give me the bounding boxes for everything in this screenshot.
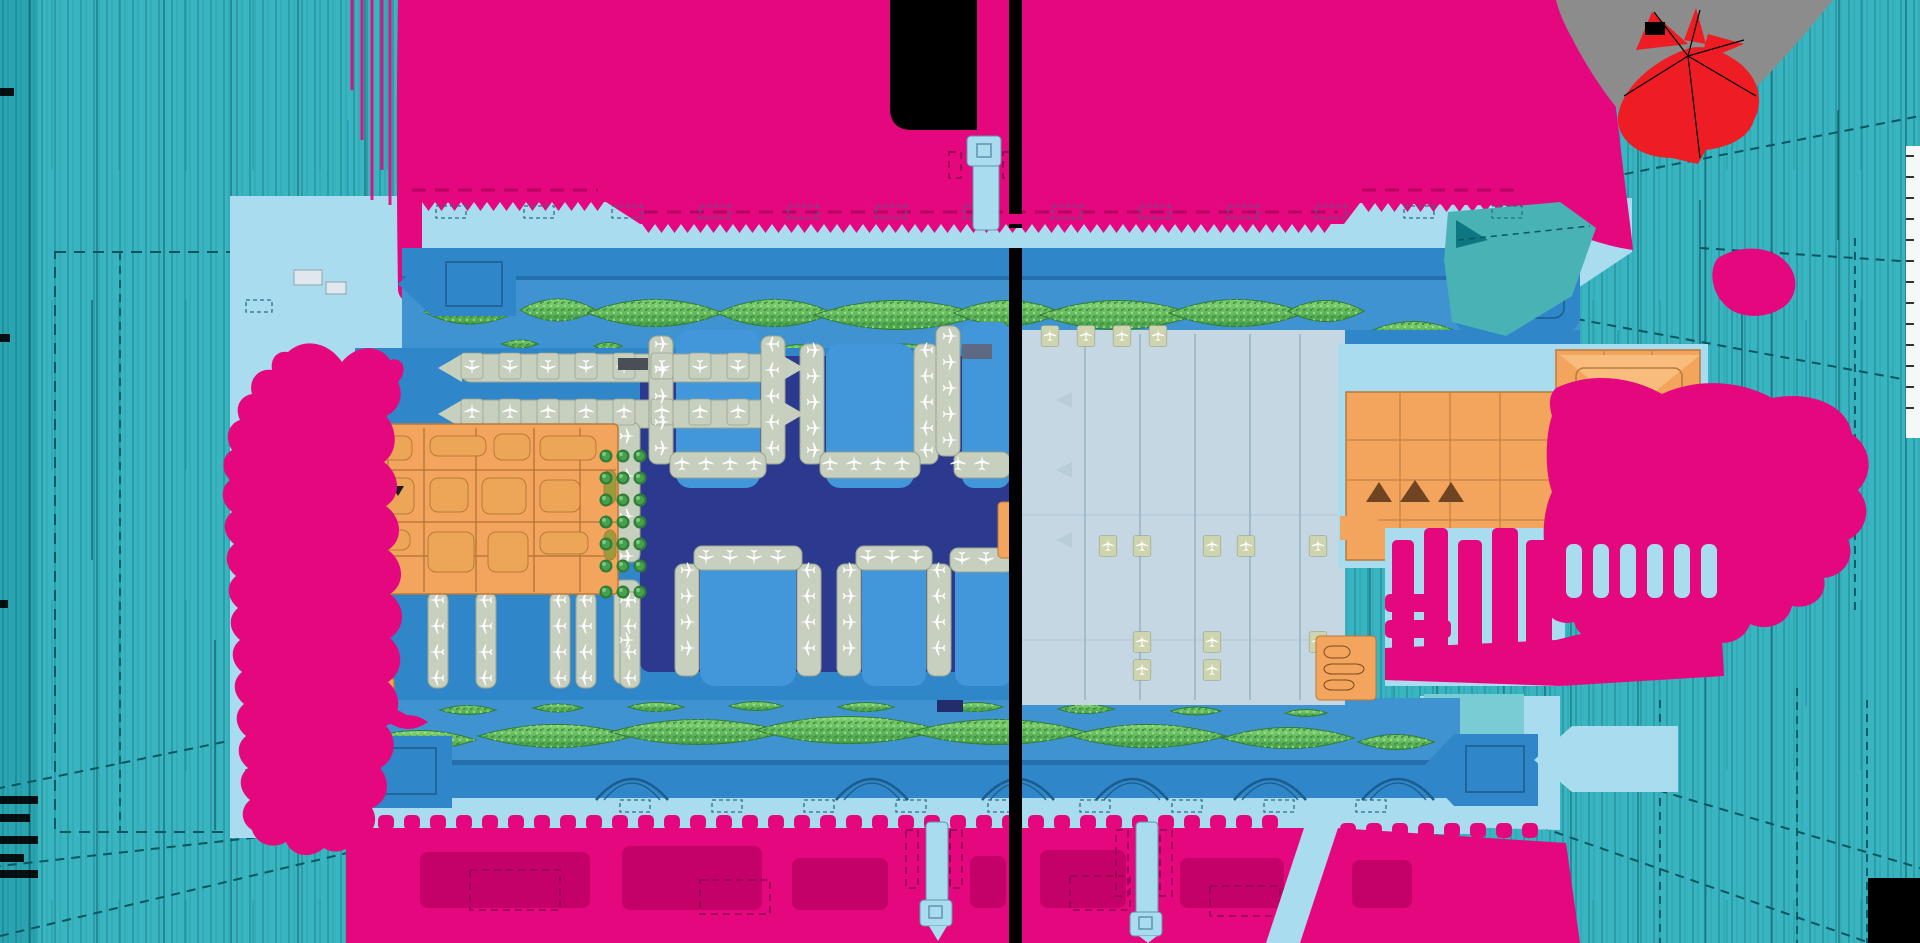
pink-battlement-east-tooth xyxy=(1470,823,1486,838)
road-stem-south-b-band xyxy=(1136,822,1158,920)
section-cut-line-upper xyxy=(1009,0,1022,228)
pink-emboss-blocks-band xyxy=(792,858,888,910)
pink-battlement-west-tooth xyxy=(482,815,498,830)
road-stem-south-a-band xyxy=(926,822,948,908)
aircraft-stand xyxy=(1149,326,1167,347)
tree-icon xyxy=(600,560,613,573)
orange-wedge-east xyxy=(1340,516,1378,540)
pink-battlement-west-tooth xyxy=(1262,815,1278,830)
pale-teeth-over-pink-tooth xyxy=(1566,544,1582,598)
aircraft-stand xyxy=(1237,536,1255,557)
map-layers xyxy=(0,0,1920,943)
support-campus-rooms-band xyxy=(540,480,580,512)
pink-comb-teeth-band xyxy=(1385,620,1451,638)
pink-battlement-west-tooth xyxy=(976,815,992,830)
aircraft-stand xyxy=(689,353,711,379)
tree-icon xyxy=(617,472,630,485)
pink-battlement-west-tooth xyxy=(1106,815,1122,830)
tree-icon xyxy=(600,472,613,485)
section-cut-pink-tick xyxy=(1004,214,1028,224)
tree-icon xyxy=(634,560,647,573)
pink-emboss-blocks-band xyxy=(1180,858,1284,908)
road-stem-north-band xyxy=(967,136,1001,166)
support-campus-rooms-band xyxy=(430,478,468,512)
aircraft-stand xyxy=(1113,326,1131,347)
aircraft-stand xyxy=(537,399,559,425)
terminal-pocket-s2 xyxy=(862,556,926,686)
aircraft-stand xyxy=(727,353,749,379)
aircraft-stand xyxy=(499,399,521,425)
gate-bands-band xyxy=(820,452,920,478)
pink-emboss-blocks-band xyxy=(1040,850,1126,908)
pink-emboss-blocks-band xyxy=(420,852,590,908)
pink-battlement-east-tooth xyxy=(1522,823,1538,838)
terminal-pocket-s1 xyxy=(700,556,796,686)
section-cut-line-lower xyxy=(1009,248,1022,943)
tree-icon xyxy=(600,538,613,551)
pale-teeth-over-pink-tooth xyxy=(1647,544,1663,598)
road-stem-south-b-band xyxy=(1130,912,1162,936)
pink-battlement-east-tooth xyxy=(1496,823,1512,838)
tree-icon xyxy=(617,494,630,507)
pale-teeth-over-pink-tooth xyxy=(1674,544,1690,598)
gate-bands-band xyxy=(936,326,960,456)
pink-battlement-west-tooth xyxy=(1236,815,1252,830)
pink-battlement-west-tooth xyxy=(534,815,550,830)
tree-icon xyxy=(617,450,630,463)
pink-wiggle-west xyxy=(223,343,404,855)
masterplan-canvas xyxy=(0,0,1920,943)
pink-battlement-west-tooth xyxy=(508,815,524,830)
tree-icon xyxy=(600,586,613,599)
support-campus-rooms-band xyxy=(430,436,486,456)
logo-black-rect xyxy=(1645,22,1665,35)
small-gray-block-a xyxy=(294,270,322,285)
pink-comb-teeth-band xyxy=(1385,594,1433,612)
pink-battlement-west-tooth xyxy=(716,815,732,830)
pale-teeth-over-pink-tooth xyxy=(1620,544,1636,598)
gate-bands-band xyxy=(675,564,699,676)
section-mask-rect xyxy=(890,0,977,130)
small-gray-block-b xyxy=(326,282,346,294)
pink-battlement-west-tooth xyxy=(430,815,446,830)
pink-battlement-west-tooth xyxy=(612,815,628,830)
aircraft-stand xyxy=(461,399,483,425)
aircraft-stand xyxy=(1203,660,1221,681)
support-campus-rooms-band xyxy=(428,532,474,572)
pink-battlement-west-tooth xyxy=(846,815,862,830)
pink-battlement-east-tooth xyxy=(1444,823,1460,838)
support-campus-rooms-band xyxy=(488,532,528,572)
pink-battlement-west-tooth xyxy=(560,815,576,830)
support-campus-rooms-band xyxy=(540,436,596,460)
aircraft-stand xyxy=(1133,660,1151,681)
aircraft-stand xyxy=(1133,632,1151,653)
bus-block xyxy=(618,358,648,370)
terminal-south-stub xyxy=(937,700,963,712)
pink-battlement-west-tooth xyxy=(1184,815,1200,830)
tree-icon xyxy=(634,472,647,485)
road-stem-south-a-band xyxy=(920,900,952,926)
pink-battlement-west-tooth xyxy=(352,815,368,830)
pink-battlement-west-tooth xyxy=(1210,815,1226,830)
pink-battlement-west-tooth xyxy=(820,815,836,830)
pink-battlement-west-tooth xyxy=(690,815,706,830)
pink-battlement-east-tooth xyxy=(1392,823,1408,838)
aircraft-stand xyxy=(1203,632,1221,653)
tree-icon xyxy=(600,450,613,463)
airport-masterplan-drawing xyxy=(0,0,1920,943)
pink-comb-teeth-band xyxy=(1458,540,1482,658)
gate-bands-band xyxy=(670,452,766,478)
tree-icon xyxy=(634,450,647,463)
pink-battlement-west-tooth xyxy=(950,815,966,830)
tree-icon xyxy=(600,494,613,507)
pink-battlement-west-tooth xyxy=(638,815,654,830)
pink-emboss-blocks-band xyxy=(622,846,762,910)
pink-battlement-west-tooth xyxy=(794,815,810,830)
gate-bands-band xyxy=(800,344,824,464)
aircraft-stand xyxy=(1133,536,1151,557)
tree-icon xyxy=(634,494,647,507)
aircraft-stand xyxy=(575,353,597,379)
pink-battlement-east-tooth xyxy=(1418,823,1434,838)
pink-battlement-west-tooth xyxy=(1054,815,1070,830)
pink-emboss-blocks-band xyxy=(1352,860,1412,908)
terminal-roof-slate xyxy=(962,344,992,359)
pink-battlement-west-tooth xyxy=(1080,815,1096,830)
tree-icon xyxy=(617,560,630,573)
gate-bands-band xyxy=(797,564,821,676)
tree-icon xyxy=(617,538,630,551)
pale-teeth-over-pink-tooth xyxy=(1701,544,1717,598)
support-campus-rooms-band xyxy=(482,478,526,514)
aircraft-stand xyxy=(1041,326,1059,347)
pink-battlement-east-tooth xyxy=(1340,823,1356,838)
support-campus-rooms-band xyxy=(540,532,588,554)
aircraft-stand xyxy=(499,353,521,379)
tree-icon xyxy=(600,516,613,529)
pink-battlement-west-tooth xyxy=(1158,815,1174,830)
aircraft-stand xyxy=(613,399,635,425)
tree-icon xyxy=(634,538,647,551)
tree-icon xyxy=(617,586,630,599)
pink-battlement-east-tooth xyxy=(1366,823,1382,838)
black-corner-southeast xyxy=(1868,878,1920,943)
aircraft-stand xyxy=(1077,326,1095,347)
pink-emboss-blocks-band xyxy=(970,856,1006,908)
bottom-road-edge-line xyxy=(340,760,1460,765)
east-apron-pale xyxy=(1022,330,1345,705)
pink-battlement-west-tooth xyxy=(456,815,472,830)
pale-teeth-over-pink-tooth xyxy=(1593,544,1609,598)
aircraft-stand xyxy=(537,353,559,379)
aircraft-stand xyxy=(727,399,749,425)
aircraft-stand xyxy=(461,353,483,379)
gate-bands-band xyxy=(837,564,861,676)
pink-battlement-west-tooth xyxy=(742,815,758,830)
pink-battlement-west-tooth xyxy=(586,815,602,830)
terminal-pocket-s3 xyxy=(955,560,1012,686)
aircraft-stand xyxy=(1099,536,1117,557)
tree-icon xyxy=(617,516,630,529)
margin-strip-east xyxy=(1906,146,1920,438)
pink-phase-bottom-east xyxy=(1296,828,1580,943)
campus-tree-row xyxy=(600,586,647,599)
gate-bands-band xyxy=(927,564,951,676)
tree-icon xyxy=(634,516,647,529)
aircraft-stand xyxy=(1309,536,1327,557)
pink-battlement-west-tooth xyxy=(1028,815,1044,830)
pink-battlement-west-tooth xyxy=(404,815,420,830)
pink-battlement-west-tooth xyxy=(378,815,394,830)
pink-battlement-west-tooth xyxy=(768,815,784,830)
pink-battlement-west-tooth xyxy=(872,815,888,830)
aircraft-stand xyxy=(1203,536,1221,557)
support-campus-rooms-band xyxy=(494,434,530,460)
pink-battlement-west-tooth xyxy=(664,815,680,830)
pink-battlement-west-tooth xyxy=(898,815,914,830)
tree-icon xyxy=(634,586,647,599)
aircraft-stand xyxy=(575,399,597,425)
aircraft-stand xyxy=(689,399,711,425)
